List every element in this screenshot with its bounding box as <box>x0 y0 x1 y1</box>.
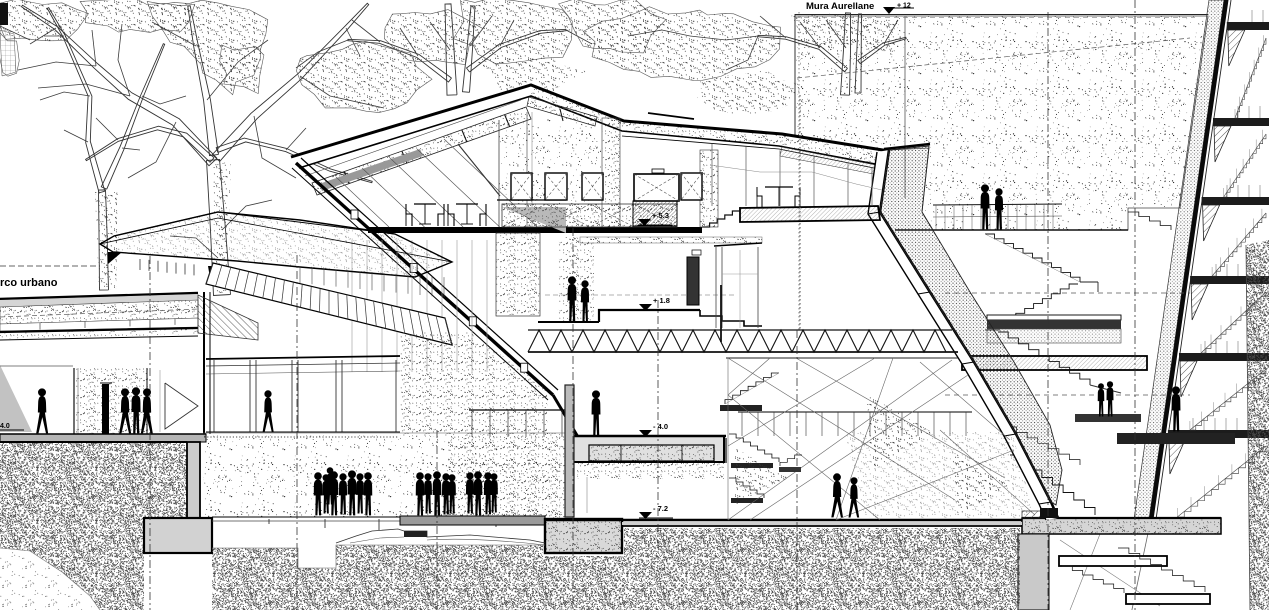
svg-text:Mura Aurellane: Mura Aurellane <box>806 1 874 12</box>
svg-text:+ 1.8: + 1.8 <box>653 296 670 305</box>
svg-text:4.0: 4.0 <box>0 423 10 430</box>
svg-text:rco urbano: rco urbano <box>0 277 58 289</box>
svg-text:- 7.2: - 7.2 <box>653 504 668 513</box>
svg-text:+ 5.3: + 5.3 <box>652 211 669 220</box>
svg-text:- 4.0: - 4.0 <box>653 422 668 431</box>
